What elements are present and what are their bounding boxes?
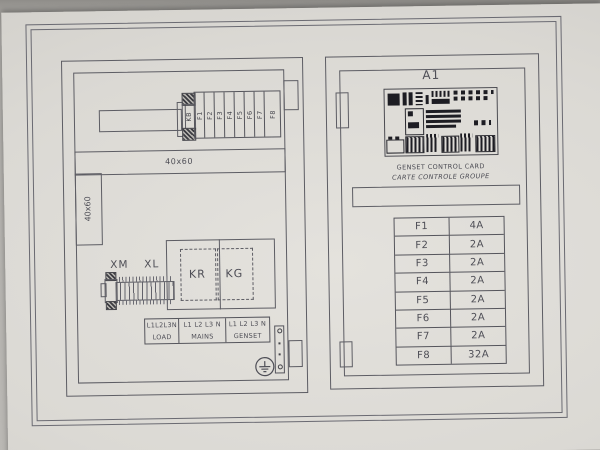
- card-caption: GENSET CONTROL CARD CARTE CONTROLE GROUP…: [361, 161, 521, 184]
- source-label: LOAD: [145, 331, 179, 344]
- pcb-connector: [460, 133, 472, 151]
- fuse-rating: 2A: [449, 271, 504, 290]
- pcb-component: [395, 136, 399, 139]
- pcb-component: [432, 99, 450, 104]
- fuse-rating: 2A: [450, 326, 505, 345]
- pcb-connector: [475, 135, 495, 152]
- contactor-kg-label: KG: [217, 248, 252, 299]
- device-tag-a1: A1: [339, 67, 523, 84]
- fuse-rating: 2A: [449, 253, 504, 272]
- fuse-cell-label: F6: [245, 110, 253, 119]
- pcb-bar: [426, 110, 461, 114]
- pcb-component: [388, 93, 400, 105]
- pcb-component: [408, 111, 413, 116]
- fuse-cell: F5: [234, 92, 245, 137]
- control-card-pcb: [383, 87, 498, 157]
- pcb-bar: [426, 115, 461, 119]
- pcb-component: [432, 91, 450, 97]
- left-panel-hinge-bottom: [288, 340, 302, 367]
- fuse-cell-label: F3: [215, 110, 223, 119]
- pcb-connector: [441, 136, 459, 153]
- fuse-id: F8: [397, 345, 451, 364]
- source-label: GENSET: [226, 330, 269, 343]
- contactor-kr-label: KR: [180, 248, 215, 299]
- connection-col-mains: L1 L2 L3 N MAINS: [179, 318, 226, 343]
- fuse-rating: 4A: [449, 217, 504, 235]
- fuse-rating: 2A: [450, 308, 505, 327]
- fuse-cell: F7: [254, 92, 265, 137]
- cable-duct-vertical-label: 40x60: [75, 173, 101, 243]
- fuse-cell-label: F1: [195, 111, 203, 120]
- terminal-group-xl-label: XL: [144, 258, 159, 270]
- fuse-cell: F6: [244, 92, 255, 137]
- connection-table: L1L2L3N LOAD L1 L2 L3 N MAINS L1 L2 L3 N…: [144, 317, 270, 345]
- pcb-bar: [426, 125, 456, 128]
- fuse-cell: F3: [214, 92, 225, 137]
- screw-dot: [279, 353, 281, 355]
- right-panel-hinge-bottom: [339, 341, 352, 367]
- fuse-block: F1 F2 F3 F4 F5 F6 F7 F8: [193, 90, 281, 138]
- fuse-id: F2: [395, 235, 449, 254]
- fuse-cell-label: F7: [255, 110, 263, 119]
- fuse-id: F4: [395, 272, 449, 291]
- pcb-component: [426, 95, 429, 104]
- breaker-handle-bar: [99, 109, 182, 132]
- photo-of-drawing: KB F1 F2 F3 F4 F5 F6 F7 F8 40x60 40x60 K…: [0, 0, 600, 450]
- screw-icon: [278, 364, 283, 369]
- pcb-component: [409, 92, 413, 105]
- fuse-id: F7: [396, 327, 450, 346]
- drawing-sheet: KB F1 F2 F3 F4 F5 F6 F7 F8 40x60 40x60 K…: [1, 3, 600, 450]
- fuse-id: F5: [396, 290, 450, 309]
- pcb-connector: [405, 136, 424, 153]
- fuse-cell: F4: [224, 92, 235, 137]
- pcb-component-row: [454, 96, 491, 101]
- fuse-cell-label: F5: [235, 110, 243, 119]
- connection-col-load: L1L2L3N LOAD: [145, 319, 179, 344]
- screw-dot: [278, 342, 280, 344]
- pcb-component: [388, 137, 392, 140]
- fuse-cell: F8: [264, 91, 281, 136]
- fuse-id: F1: [395, 218, 449, 236]
- pcb-bar: [426, 120, 461, 124]
- screw-icon: [277, 328, 282, 333]
- pcb-foot-outline: [386, 139, 404, 153]
- terminal-ticks-bottom: [117, 299, 173, 305]
- fuse-id: F3: [395, 253, 449, 272]
- connection-col-genset: L1 L2 L3 N GENSET: [225, 318, 270, 343]
- phases-label: L1 L2 L3 N: [226, 318, 269, 331]
- left-panel-hinge-top: [283, 80, 298, 110]
- pcb-component: [403, 92, 407, 105]
- kb-label: KB: [185, 112, 193, 122]
- fuse-cell-label: F8: [268, 109, 276, 118]
- earth-ground-icon: [254, 355, 276, 377]
- pcb-connector: [426, 134, 438, 152]
- label-strip: [352, 185, 520, 208]
- terminal-strip-cells: [115, 281, 174, 301]
- pcb-component-row: [474, 120, 491, 125]
- pcb-component: [408, 122, 419, 128]
- phases-label: L1 L2 L3 N: [180, 318, 225, 331]
- fuse-rating-table: F1 4A F2 2A F3 2A F4 2A F5 2A F6 2A F7 2…: [394, 216, 507, 366]
- fuse-id: F6: [396, 309, 450, 328]
- fuse-rating: 2A: [450, 289, 505, 308]
- terminal-end-clamp-bottom: [106, 301, 117, 310]
- terminal-group-xm-label: XM: [110, 259, 128, 271]
- fuse-cell: F2: [204, 92, 215, 137]
- fuse-rating: 2A: [449, 234, 504, 253]
- fuse-cell-label: F2: [205, 110, 213, 119]
- source-label: MAINS: [180, 330, 225, 343]
- phases-label: L1L2L3N: [145, 319, 179, 332]
- pcb-component-row: [454, 90, 494, 95]
- right-panel-hinge-top: [336, 92, 350, 128]
- pcb-component: [416, 92, 423, 105]
- fuse-cell-label: F4: [225, 110, 233, 119]
- fuse-rating: 32A: [451, 344, 506, 363]
